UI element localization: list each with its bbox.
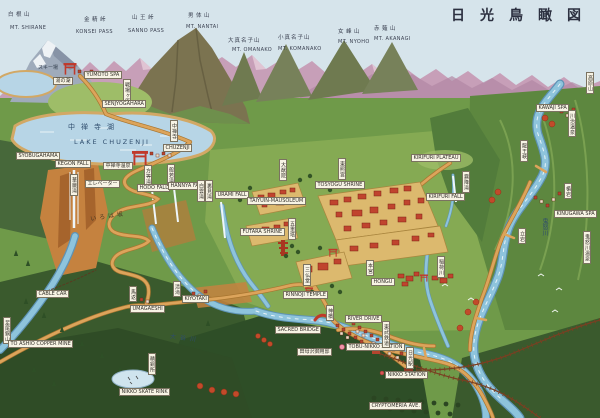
label-sacred-bridge: SACRED BRIDGE bbox=[275, 326, 321, 334]
label-tobu-station: TOBU-NIKKO STATION bbox=[346, 343, 405, 351]
label-futara-shrine: FUTARA SHRINE bbox=[240, 228, 285, 236]
peak-akanagi-en: MT. AKANAGI bbox=[374, 36, 411, 42]
label-kiyotaki-ja: 清滝 bbox=[173, 281, 181, 297]
peak-shirane-ja: 白根山 bbox=[8, 10, 32, 18]
label-umagaeshi-ja: 馬返 bbox=[129, 286, 137, 302]
peak-nantai-en: MT. NANTAI bbox=[186, 24, 218, 30]
lake-chuzenji-en: LAKE CHUZENJI bbox=[74, 138, 150, 146]
label-nikko-sta-ja: 日光駅 bbox=[406, 347, 414, 369]
peak-nantai-ja: 男体山 bbox=[188, 11, 212, 19]
label-tamozawa-villa: 田母沢御用邸 bbox=[297, 348, 332, 356]
peak-omanako-ja: 大真名子山 bbox=[228, 36, 261, 44]
label-umagaeshi-en: UMAGAESHI bbox=[130, 305, 165, 313]
label-cable-car: CABLE CAR bbox=[36, 290, 69, 298]
peak-konsei-ja: 金精峠 bbox=[84, 15, 108, 23]
label-chuzenji-spa: 中禅寺温泉 bbox=[103, 162, 133, 170]
label-yumoto-spa: YUMOTO SPA bbox=[84, 71, 122, 79]
label-kawaji-ja: 川治温泉 bbox=[568, 110, 576, 137]
label-takahara-ja: 高原山 bbox=[586, 72, 594, 94]
label-inari-river: 稲荷川 bbox=[437, 256, 445, 278]
tobu-station-dot bbox=[340, 345, 345, 350]
peak-komanako-en: MT. KOMANAKO bbox=[278, 46, 322, 52]
ski-ground-text: スキー場 bbox=[38, 64, 58, 71]
label-pagoda-ja: 五重塔 bbox=[288, 218, 296, 240]
label-taiyuin-ja: 大猷院 bbox=[279, 159, 287, 181]
label-taiyuin-en: TAIYUIN-MAUSOLEUM bbox=[247, 197, 306, 205]
peak-sanno-en: SANNO PASS bbox=[128, 28, 164, 34]
label-tobu-railway: 東武鉄道 bbox=[382, 321, 390, 348]
peak-konsei-en: KONSEI PASS bbox=[76, 29, 113, 35]
nikko-panorama-map: 日光鳥瞰図 白根山 MT. SHIRANE 金精峠 KONSEI PASS 山王… bbox=[0, 0, 600, 418]
nikko-station-dot bbox=[380, 371, 384, 375]
label-elevator: エレベーター bbox=[85, 180, 120, 188]
label-river-drive: RIVER DRIVE bbox=[345, 315, 382, 323]
label-tosyogu-en: TOSYOGU SHRINE bbox=[315, 181, 365, 189]
label-chuzenji-ja: 中禅寺 bbox=[170, 120, 178, 142]
label-kirifuri-fall-ja: 霧降滝 bbox=[462, 171, 470, 193]
label-shirakumo-fall: 白雲滝 bbox=[197, 180, 205, 202]
label-skate-rink: NIKKO SKATE RINK bbox=[119, 388, 170, 396]
label-urami-fall-en: URAMI FALL bbox=[215, 191, 249, 199]
label-hongu-ja: 本宮 bbox=[366, 260, 374, 276]
label-tosyogu-ja: 東照宮 bbox=[338, 158, 346, 180]
peak-shirane-en: MT. SHIRANE bbox=[10, 25, 46, 31]
label-kiyotaki-en: KIYOTAKI bbox=[182, 295, 209, 303]
label-kirifuri-plateau: KIRIFURI PLATEAU bbox=[411, 154, 461, 162]
label-shinkyo-ja: 神橋 bbox=[326, 305, 334, 321]
label-yunoko: 湯の湖 bbox=[53, 77, 73, 85]
label-syobugahama: SYOBUGAHAMA bbox=[16, 152, 60, 160]
label-kinugawa-ja: 鬼怒川温泉 bbox=[583, 231, 591, 264]
label-seidosho: 精銅所 bbox=[148, 353, 156, 375]
peak-komanako-ja: 小真名子山 bbox=[278, 33, 311, 41]
peak-akanagi-ja: 赤薙山 bbox=[374, 24, 398, 32]
peak-nyoho-en: MT. NYOHO bbox=[338, 39, 370, 45]
label-tateiwa-ja: 楯岩 bbox=[564, 183, 572, 199]
label-kawaji-spa: KAWAJI SPA bbox=[536, 104, 569, 112]
label-hodo-fall-en: HODO FALL bbox=[137, 184, 170, 192]
label-senjogahara-en: SENJYOGAHARA bbox=[102, 100, 146, 108]
label-rinnoji-temple: RINNOJI TEMPLE bbox=[283, 291, 328, 299]
label-sanbutsudo-ja: 三仏堂 bbox=[303, 264, 311, 286]
peak-nyoho-ja: 女峰山 bbox=[338, 27, 362, 35]
label-tachiiwa-ja: 立岩 bbox=[518, 228, 526, 244]
map-title: 日光鳥瞰図 bbox=[451, 5, 596, 25]
label-hongu-en: HONGU bbox=[371, 278, 395, 286]
label-kegon-fall-ja: 華厳滝 bbox=[70, 174, 78, 196]
peak-omanako-en: MT. OMANAKO bbox=[232, 47, 272, 53]
label-kegon-fall-en: KEGON FALL bbox=[55, 160, 91, 168]
label-nikko-station: NIKKO STATION bbox=[385, 371, 428, 379]
label-kinugawa-spa: KINUGAWA SPA bbox=[554, 210, 597, 218]
label-cryptomeria-ave: CRYPTOMERIA AVE. bbox=[369, 402, 422, 410]
label-ashio-en: TO ASHIO COPPER MINE bbox=[8, 340, 73, 348]
label-urami-fall-ja: 裏見滝 bbox=[205, 180, 213, 202]
kinu-river-text: 鬼怒川 bbox=[540, 218, 549, 236]
label-ryuokyo-ja: 龍王峡 bbox=[520, 140, 528, 162]
peak-sanno-ja: 山王峠 bbox=[132, 13, 156, 21]
label-kirifuri-fall-en: KIRIFURI FALL bbox=[426, 193, 465, 201]
label-chuzenji-en: CHUZENJI bbox=[163, 144, 192, 152]
lake-chuzenji-ja: 中禅寺湖 bbox=[68, 122, 120, 132]
